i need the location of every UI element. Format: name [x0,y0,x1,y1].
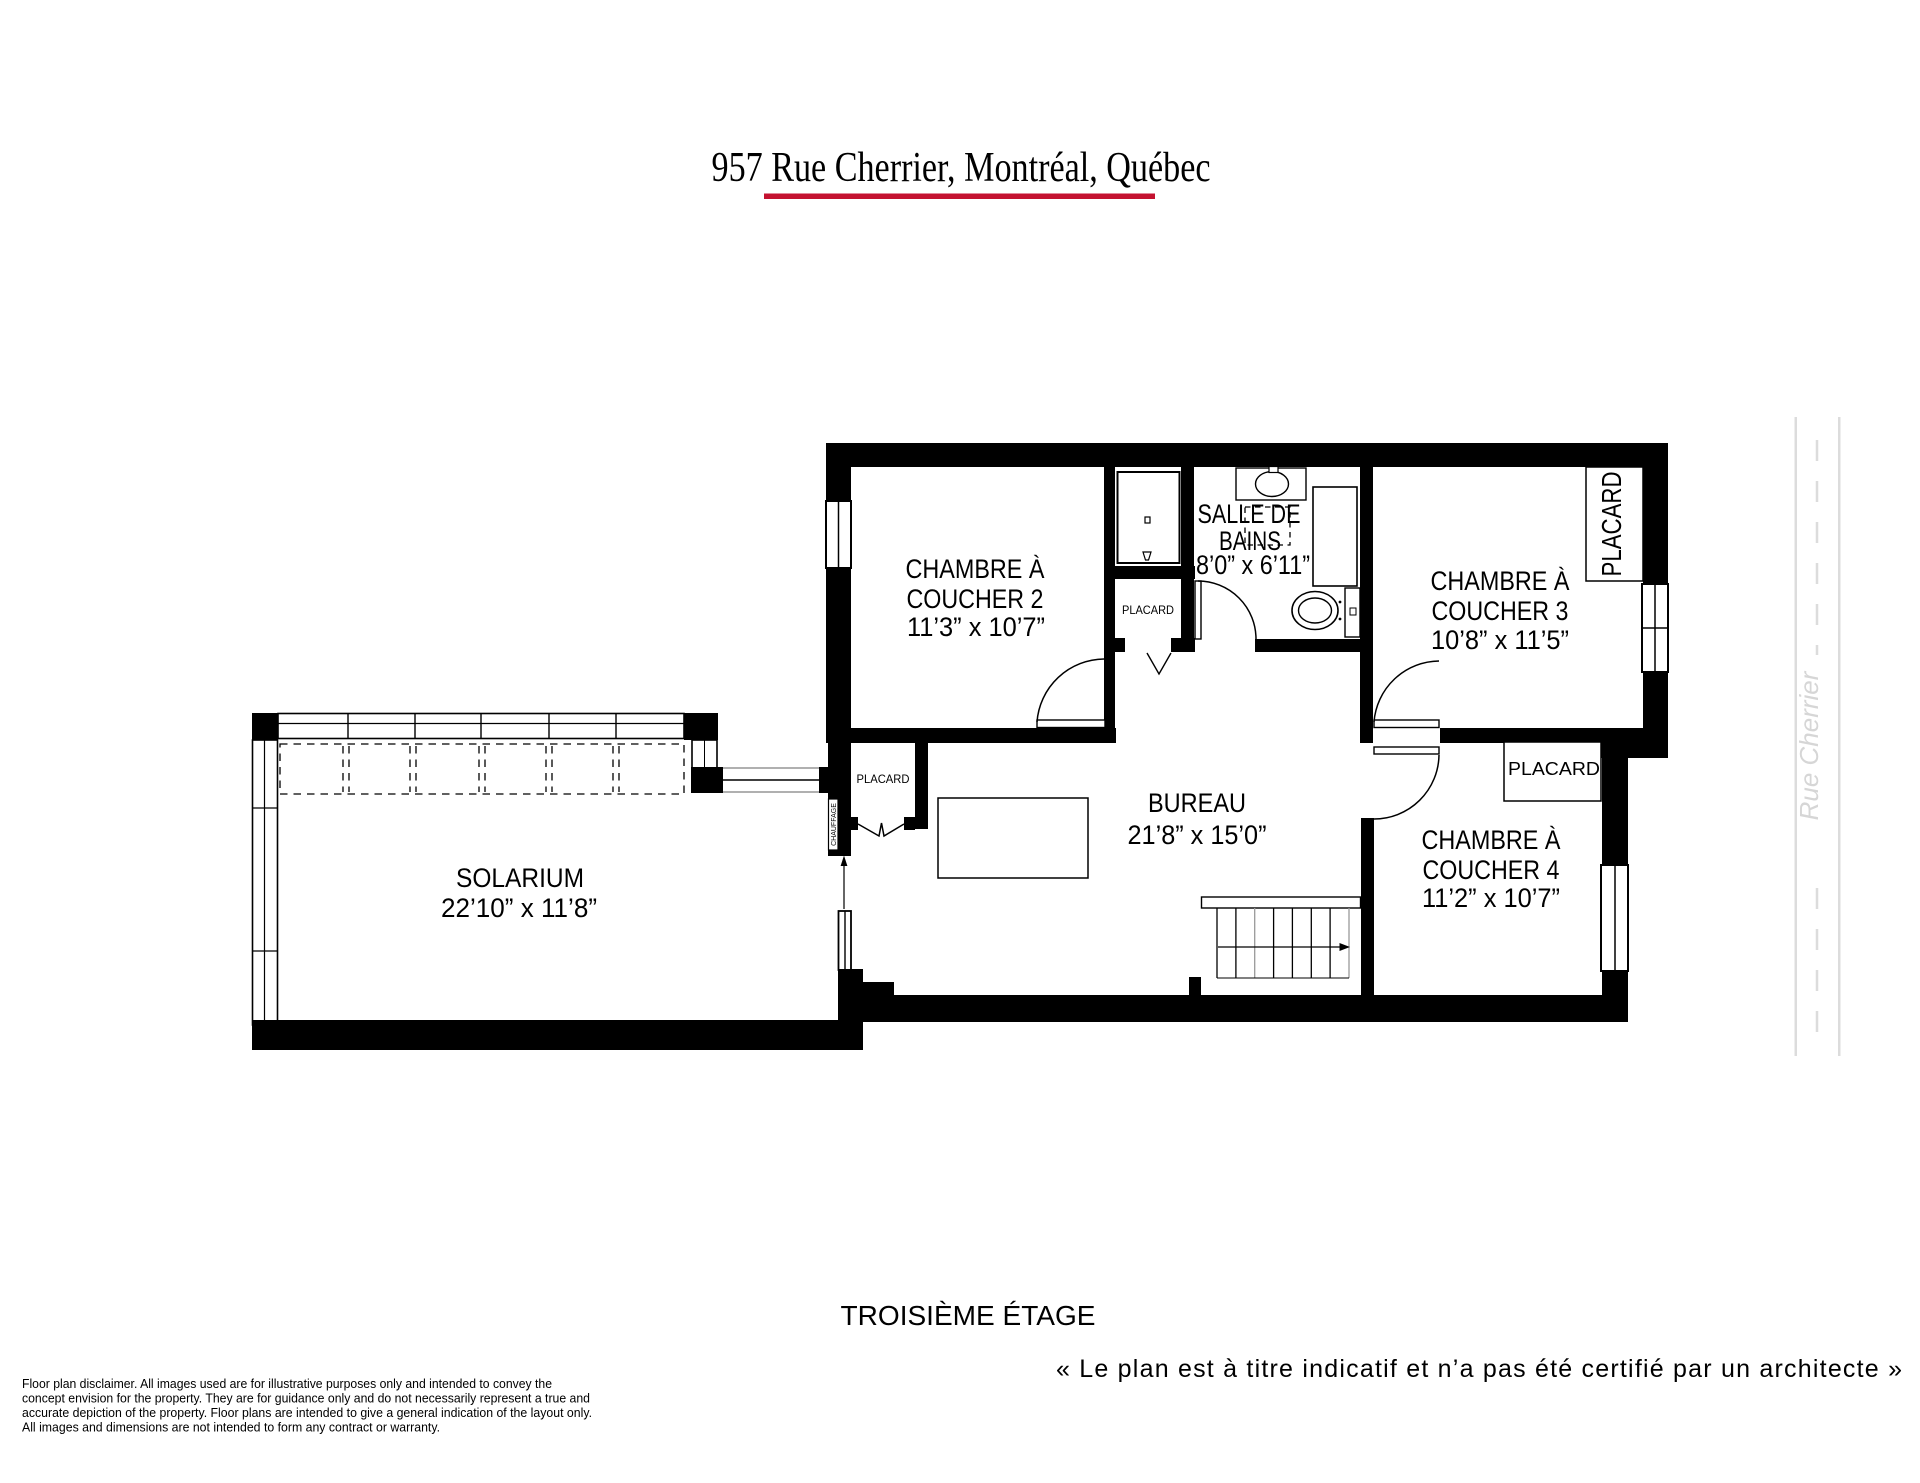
svg-text:COUCHER 2: COUCHER 2 [907,584,1044,614]
svg-text:11’2” x 10’7”: 11’2” x 10’7” [1422,883,1560,913]
svg-text:concept envision for the prope: concept envision for the property. They … [22,1391,590,1406]
svg-text:PLACARD: PLACARD [1508,759,1600,779]
svg-text:accurate depiction of the prop: accurate depiction of the property. Floo… [22,1405,592,1420]
svg-text:BUREAU: BUREAU [1148,788,1246,818]
svg-text:CHAMBRE À: CHAMBRE À [1422,825,1561,855]
svg-text:CHAMBRE À: CHAMBRE À [906,554,1045,584]
svg-text:PLACARD: PLACARD [1596,472,1627,577]
svg-text:8’0” x 6’11”: 8’0” x 6’11” [1196,550,1310,580]
svg-text:COUCHER 4: COUCHER 4 [1423,855,1560,885]
svg-text:CHAMBRE À: CHAMBRE À [1431,566,1570,596]
svg-text:All images and dimensions are: All images and dimensions are not intend… [22,1420,440,1435]
svg-text:22’10” x 11’8”: 22’10” x 11’8” [441,893,597,923]
svg-text:SOLARIUM: SOLARIUM [456,863,584,893]
svg-text:10’8” x 11’5”: 10’8” x 11’5” [1431,625,1569,655]
svg-text:957 Rue Cherrier, Montréal, Qu: 957 Rue Cherrier, Montréal, Québec [712,145,1211,191]
svg-text:Rue Cherrier: Rue Cherrier [1794,670,1824,820]
svg-text:SALLE DE: SALLE DE [1198,499,1301,529]
svg-text:CHAUFFAGE: CHAUFFAGE [831,803,838,846]
svg-text:21’8” x 15’0”: 21’8” x 15’0” [1128,820,1267,850]
svg-text:TROISIÈME ÉTAGE: TROISIÈME ÉTAGE [841,1300,1096,1331]
svg-text:Floor plan disclaimer. All ima: Floor plan disclaimer. All images used a… [22,1376,552,1391]
svg-text:PLACARD: PLACARD [857,772,910,786]
svg-text:11’3” x 10’7”: 11’3” x 10’7” [907,612,1045,642]
svg-text:PLACARD: PLACARD [1122,603,1174,617]
svg-text:COUCHER 3: COUCHER 3 [1432,596,1569,626]
svg-text:« Le plan est à titre indicati: « Le plan est à titre indicatif et n’a p… [1056,1355,1902,1383]
